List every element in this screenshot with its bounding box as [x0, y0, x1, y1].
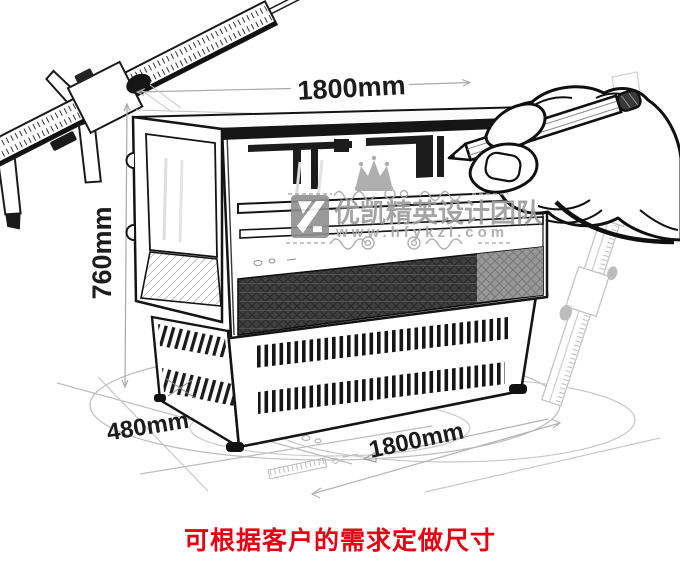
top-width-label: 1800mm	[297, 70, 407, 106]
depth-label: 480mm	[105, 407, 191, 447]
watermark-url-text: www.hfykzl.com	[335, 224, 508, 241]
brand-logo-icon	[291, 195, 329, 238]
custom-size-caption: 可根据客户的需求定做尺寸	[0, 521, 680, 557]
product-diagram-page: 优凯精英设计团队 www.hfykzl.com 1800mm 760mm 480…	[0, 0, 680, 578]
height-label: 760mm	[87, 206, 117, 299]
bottom-width-label: 1800mm	[367, 417, 467, 463]
product-sketch: 优凯精英设计团队 www.hfykzl.com 1800mm 760mm 480…	[0, 0, 680, 578]
